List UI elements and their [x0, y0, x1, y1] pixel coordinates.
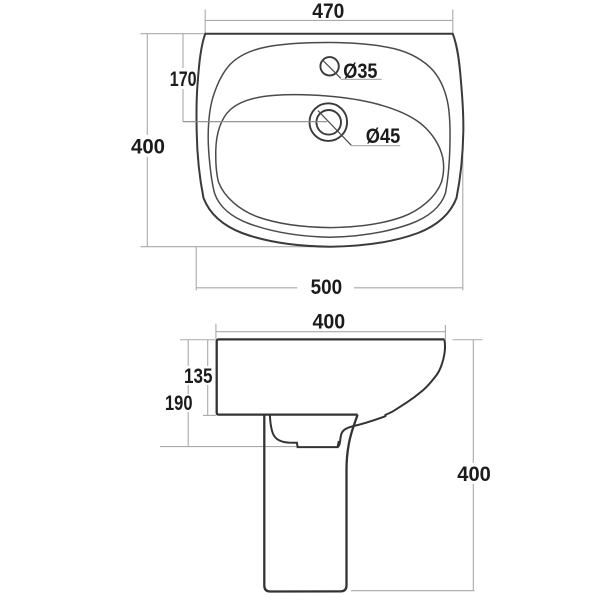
svg-text:400: 400 — [313, 309, 346, 333]
svg-text:400: 400 — [131, 135, 165, 159]
svg-text:170: 170 — [170, 67, 197, 91]
svg-text:400: 400 — [457, 462, 491, 486]
svg-text:135: 135 — [184, 364, 213, 388]
svg-text:500: 500 — [311, 275, 343, 299]
svg-text:Ø35: Ø35 — [343, 59, 377, 83]
svg-text:470: 470 — [312, 0, 344, 23]
svg-text:190: 190 — [165, 391, 193, 415]
svg-text:Ø45: Ø45 — [366, 124, 400, 148]
